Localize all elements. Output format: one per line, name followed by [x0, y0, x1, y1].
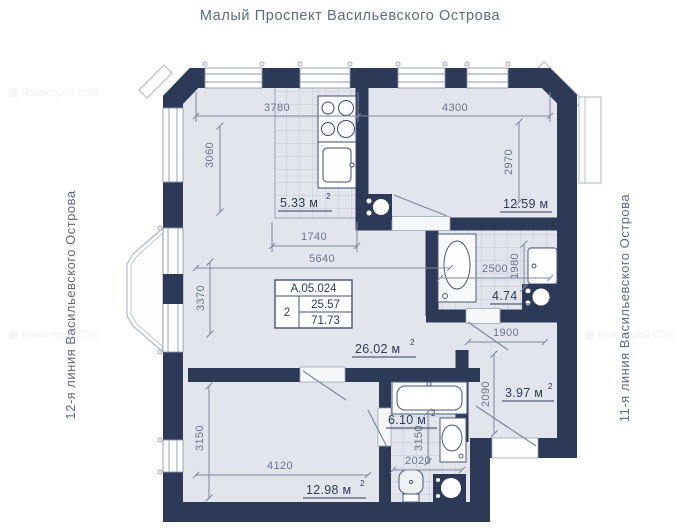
apartment-info-box: А.05.024 2 25.57 71.73 [275, 280, 352, 328]
dim-2020: 2020 [405, 455, 431, 467]
dim-5640: 5640 [309, 253, 335, 265]
washbasin-icon-main [528, 248, 557, 284]
dim-2970: 2970 [503, 149, 515, 175]
dim-1740: 1740 [301, 231, 327, 243]
floor-plan-page: Малый Проспект Васильевского Острова 12-… [0, 0, 700, 531]
dim-1980: 1980 [509, 253, 521, 279]
svg-text:2: 2 [360, 479, 365, 488]
room-label-bottom-left: 12.98 м [306, 483, 351, 497]
svg-text:2: 2 [326, 192, 331, 201]
washbasin-icon-bottom [440, 418, 466, 462]
dim-3780: 3780 [264, 102, 290, 114]
svg-text:2: 2 [410, 338, 415, 347]
dim-3150-room: 3150 [194, 425, 206, 451]
room-label-living: 26.02 м [355, 342, 400, 356]
rooms-count: 2 [284, 307, 290, 319]
room-label-kitchen: 5.33 м [280, 196, 318, 210]
total-area: 71.73 [311, 315, 340, 327]
dim-3150-bath: 3150 [413, 425, 425, 451]
room-label-top-right: 12.59 м [503, 197, 548, 211]
washing-machine-icon [433, 474, 466, 502]
room-label-hallway: 3.97 м [505, 386, 543, 400]
toilet-icon-bottom [399, 470, 423, 502]
dim-4120: 4120 [267, 460, 293, 472]
balcony-right [579, 97, 601, 183]
svg-text:2: 2 [548, 382, 553, 391]
floor-plan: 3780 4300 3060 2970 1740 5640 3370 2500 … [0, 0, 700, 531]
unit-id: А.05.024 [290, 283, 337, 295]
dim-4300: 4300 [442, 102, 468, 114]
bathtub-icon-bottom [392, 382, 467, 414]
room-label-bathroom2: 6.10 м [388, 413, 426, 427]
living-area: 25.57 [311, 299, 340, 311]
dim-1900: 1900 [493, 327, 519, 339]
toilet-icon-top [364, 194, 392, 220]
dim-2500: 2500 [482, 263, 508, 275]
dim-2090: 2090 [480, 381, 492, 407]
room-label-bathroom: 4.74 м [492, 289, 530, 303]
kitchen-sink-icon [318, 142, 356, 188]
dim-3060: 3060 [204, 142, 216, 168]
bay-window [127, 228, 163, 352]
kitchen-stove-icon [318, 96, 356, 142]
svg-text:2: 2 [431, 409, 436, 418]
dim-3370: 3370 [195, 285, 207, 311]
